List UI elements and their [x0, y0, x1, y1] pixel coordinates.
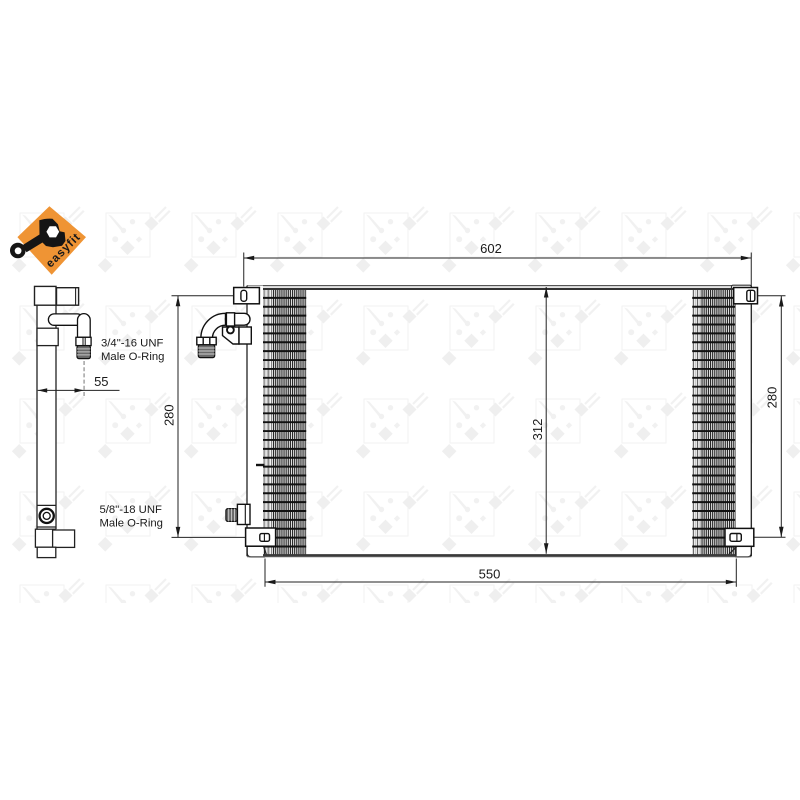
svg-text:5/8"-18 UNF: 5/8"-18 UNF	[100, 504, 162, 516]
svg-text:Male O-Ring: Male O-Ring	[101, 351, 164, 363]
svg-text:3/4"-16 UNF: 3/4"-16 UNF	[101, 337, 163, 349]
svg-text:55: 55	[94, 374, 108, 389]
svg-text:312: 312	[530, 419, 545, 441]
svg-text:602: 602	[480, 241, 502, 256]
svg-text:Male O-Ring: Male O-Ring	[100, 517, 163, 529]
svg-text:280: 280	[161, 404, 176, 426]
svg-text:550: 550	[479, 566, 501, 581]
svg-text:280: 280	[765, 387, 780, 409]
